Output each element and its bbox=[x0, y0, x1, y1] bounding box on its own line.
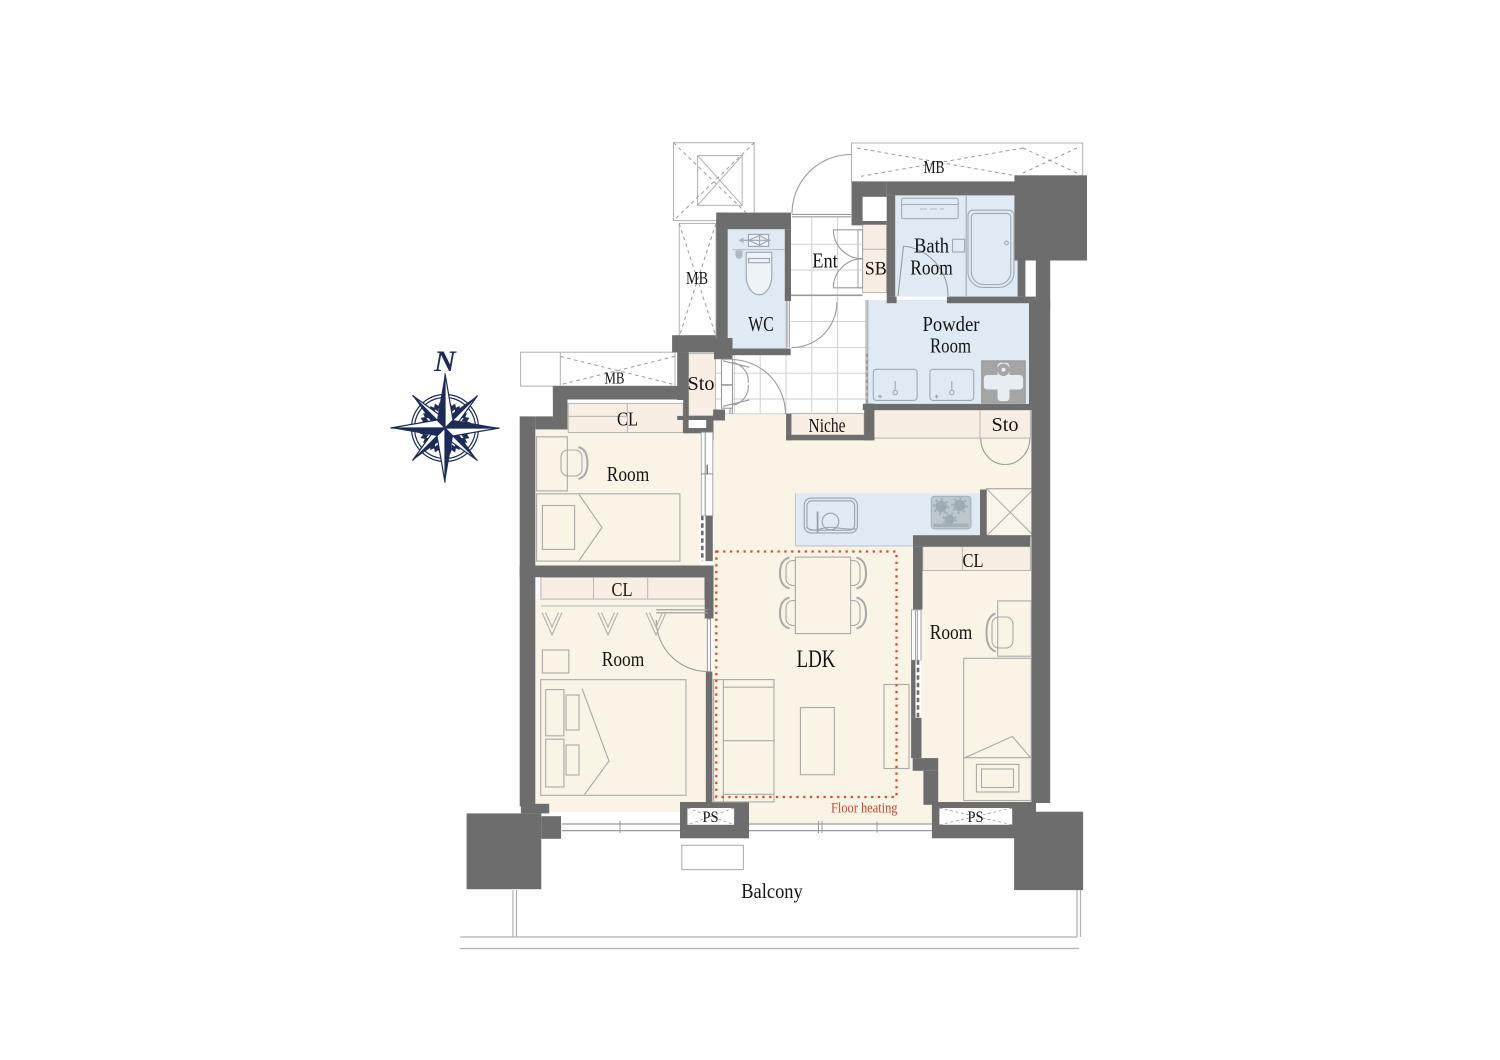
svg-text:MB: MB bbox=[686, 268, 708, 288]
svg-text:CL: CL bbox=[612, 579, 633, 601]
svg-text:Room: Room bbox=[930, 334, 971, 358]
svg-text:PS: PS bbox=[703, 809, 719, 826]
svg-text:Ent: Ent bbox=[812, 249, 838, 273]
svg-text:CL: CL bbox=[963, 550, 984, 572]
svg-text:LDK: LDK bbox=[797, 646, 836, 673]
svg-text:Balcony: Balcony bbox=[741, 879, 803, 903]
svg-text:Bath: Bath bbox=[914, 234, 949, 258]
svg-text:WC: WC bbox=[748, 312, 774, 336]
svg-text:Room: Room bbox=[602, 647, 645, 671]
svg-text:CL: CL bbox=[617, 409, 638, 431]
svg-text:Room: Room bbox=[910, 256, 953, 280]
svg-text:PS: PS bbox=[968, 809, 984, 826]
svg-text:N: N bbox=[433, 345, 457, 378]
svg-text:Room: Room bbox=[930, 620, 973, 644]
svg-text:Room: Room bbox=[607, 462, 650, 486]
svg-text:SB: SB bbox=[865, 259, 887, 280]
svg-text:Sto: Sto bbox=[688, 373, 715, 395]
svg-text:Niche: Niche bbox=[809, 415, 846, 437]
svg-text:MB: MB bbox=[924, 157, 945, 177]
svg-text:MB: MB bbox=[605, 369, 625, 388]
svg-text:Powder: Powder bbox=[923, 312, 980, 336]
svg-text:Floor heating: Floor heating bbox=[831, 801, 898, 817]
svg-text:Sto: Sto bbox=[992, 414, 1019, 436]
